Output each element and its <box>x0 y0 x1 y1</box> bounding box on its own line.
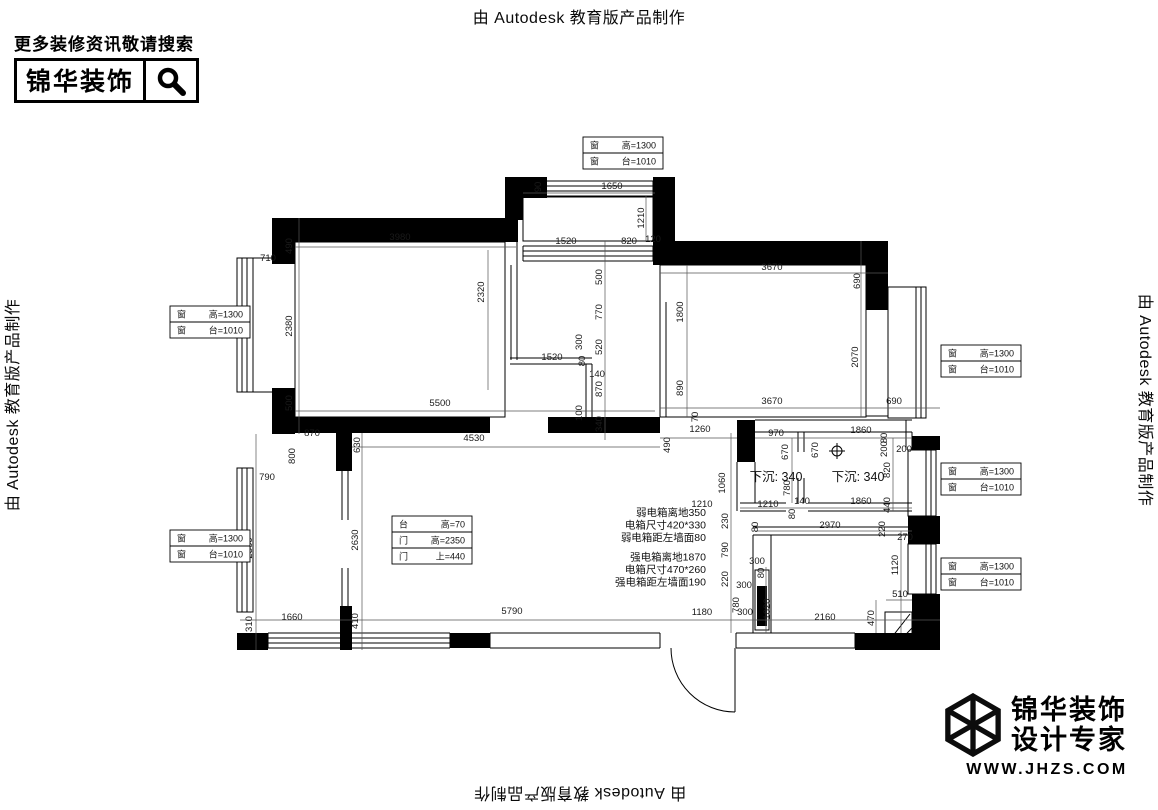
floor-plan-page: 由 Autodesk 教育版产品制作 由 Autodesk 教育版产品制作 由 … <box>0 0 1158 810</box>
window-spec-box: 窗高=1300窗台=1010 <box>941 345 1021 377</box>
dimension-label: 140 <box>589 369 605 380</box>
window-spec-box: 窗高=1300窗台=1010 <box>170 530 250 562</box>
dimension-label: 2380 <box>284 315 295 336</box>
dimension-label: 710 <box>260 253 276 264</box>
spec-boxes-layer: 窗高=1300窗台=1010窗高=1300窗台=1010窗高=1300窗台=10… <box>170 137 1021 590</box>
spec-value: 台=1010 <box>209 549 243 560</box>
electrical-note-line: 电箱尺寸420*330 <box>625 519 706 532</box>
dimension-label: 80 <box>750 522 761 533</box>
window-spec-box: 窗高=1300窗台=1010 <box>583 137 663 169</box>
spec-value: 高=1300 <box>209 309 243 320</box>
spec-key: 窗 <box>590 140 599 151</box>
spec-value: 高=1300 <box>980 466 1014 477</box>
dimension-label: 1650 <box>601 181 622 192</box>
dimension-label: 100 <box>574 405 585 421</box>
dimension-label: 500 <box>284 395 295 411</box>
dimension-label: 670 <box>810 442 821 458</box>
dimension-label: 1180 <box>692 607 712 618</box>
spec-key: 窗 <box>948 577 957 588</box>
dimension-label: 1210 <box>757 499 778 510</box>
dimension-label: 80 <box>577 356 588 367</box>
dimension-label: 890 <box>675 380 686 396</box>
dimension-label: 3670 <box>761 396 782 407</box>
dimension-label: 510 <box>892 589 908 600</box>
window-spec-box: 窗高=1300窗台=1010 <box>170 306 250 338</box>
dimension-label: 790 <box>720 542 731 558</box>
dimension-label: 670 <box>780 444 791 460</box>
window-spec-box: 窗高=1300窗台=1010 <box>941 463 1021 495</box>
dimension-label: 820 <box>621 236 637 247</box>
spec-key: 窗 <box>177 533 186 544</box>
dimension-label: 2070 <box>850 346 861 367</box>
spec-key: 门 <box>399 535 408 546</box>
dimension-label: 2970 <box>819 520 840 531</box>
dimension-label: 5790 <box>501 606 522 617</box>
footer-brand-block: 锦华装饰 设计专家 WWW.JHZS.COM <box>944 693 1150 779</box>
dimension-label: 2160 <box>814 612 835 623</box>
spec-key: 窗 <box>948 364 957 375</box>
footer-website: WWW.JHZS.COM <box>944 761 1150 779</box>
window-spec-box: 窗高=1300窗台=1010 <box>941 558 1021 590</box>
dimension-label: 270 <box>897 532 913 543</box>
dimension-label: 1120 <box>890 555 901 575</box>
spec-value: 高=2350 <box>431 535 465 546</box>
cube-3d-icon <box>944 693 1002 757</box>
dimension-label: 770 <box>594 304 605 320</box>
dimension-label: 90 <box>533 182 544 193</box>
dimension-label: 410 <box>350 613 361 629</box>
dimension-label: 1020 <box>762 598 773 619</box>
dimension-label: 70 <box>690 412 701 423</box>
dimension-label: 140 <box>794 496 810 507</box>
spec-value: 高=1300 <box>980 348 1014 359</box>
electrical-note-line: 强电箱离地1870 <box>630 551 706 564</box>
dimension-label: 1260 <box>689 424 710 435</box>
floor-drain-icon <box>829 443 845 459</box>
footer-brand-subtitle: 设计专家 <box>1011 725 1127 755</box>
dimension-label: 80 <box>787 509 798 520</box>
dimension-label: 1860 <box>850 425 871 436</box>
spec-value: 高=70 <box>441 519 465 530</box>
spec-key: 窗 <box>948 561 957 572</box>
sunken-labels-layer: 下沉: 340下沉: 340 <box>750 470 885 484</box>
dimension-label: 200 <box>879 441 890 457</box>
electrical-note-line: 强电箱距左墙面190 <box>615 576 706 589</box>
dimension-label: 870 <box>304 428 320 439</box>
floor-plan-drawing: 9016501210152082012049039807102380232050… <box>0 0 1158 810</box>
dimension-label: 3980 <box>389 232 410 243</box>
dimension-label: 470 <box>866 610 877 626</box>
sunken-floor-label: 下沉: 340 <box>750 470 803 484</box>
dimension-label: 4530 <box>463 433 484 444</box>
dimension-label: 500 <box>594 269 605 285</box>
sunken-floor-label: 下沉: 340 <box>832 470 885 484</box>
dimension-label: 970 <box>768 428 784 439</box>
spec-value: 台=1010 <box>209 325 243 336</box>
dimension-label: 80 <box>756 568 767 579</box>
dimension-label: 490 <box>284 238 295 254</box>
dimension-label: 300 <box>749 556 765 567</box>
dimension-label: 1520 <box>541 352 562 363</box>
dimension-label: 300 <box>736 580 752 591</box>
footer-brand-name: 锦华装饰 <box>1011 695 1127 725</box>
dimension-label: 230 <box>720 513 731 529</box>
electrical-notes-layer: 弱电箱离地350电箱尺寸420*330弱电箱距左墙面80强电箱离地1870电箱尺… <box>615 506 706 589</box>
dimension-label: 340 <box>594 416 605 432</box>
dimension-label: 690 <box>852 273 863 289</box>
dimension-label: 1210 <box>636 207 647 228</box>
dimension-label: 3670 <box>761 262 782 273</box>
electrical-note-line: 电箱尺寸470*260 <box>625 563 706 576</box>
spec-key: 门 <box>399 551 408 562</box>
electrical-note-line: 弱电箱离地350 <box>636 506 706 519</box>
dimension-label: 1660 <box>281 612 302 623</box>
dimension-label: 1800 <box>675 301 686 322</box>
dimension-label: 690 <box>886 396 902 407</box>
dimension-label: 120 <box>645 234 661 245</box>
spec-key: 窗 <box>590 156 599 167</box>
spec-value: 台=1010 <box>980 577 1014 588</box>
spec-value: 台=1010 <box>622 156 656 167</box>
spec-value: 高=1300 <box>209 533 243 544</box>
spec-key: 窗 <box>177 309 186 320</box>
dimension-label: 2320 <box>476 281 487 302</box>
spec-key: 窗 <box>948 348 957 359</box>
dimension-label: 1060 <box>717 472 728 493</box>
dimension-label: 220 <box>720 571 731 587</box>
spec-key: 窗 <box>177 325 186 336</box>
dimension-label: 520 <box>594 339 605 355</box>
dimension-label: 800 <box>287 448 298 464</box>
dimension-label: 1520 <box>555 236 576 247</box>
dimension-label: 870 <box>594 381 605 397</box>
spec-key: 窗 <box>948 466 957 477</box>
dimension-label: 1860 <box>850 496 871 507</box>
spec-value: 台=1010 <box>980 482 1014 493</box>
dimension-label: 2630 <box>350 529 361 550</box>
spec-key: 台 <box>399 519 408 530</box>
door-spec-box: 台高=70门高=2350门上=440 <box>392 516 472 564</box>
dimension-label: 220 <box>877 521 888 537</box>
dimension-label: 310 <box>244 616 255 632</box>
spec-value: 高=1300 <box>622 140 656 151</box>
spec-value: 上=440 <box>436 552 465 562</box>
spec-value: 高=1300 <box>980 561 1014 572</box>
dimension-label: 490 <box>662 437 673 453</box>
spec-key: 窗 <box>948 482 957 493</box>
dimension-label: 440 <box>882 497 893 513</box>
dimension-label: 200 <box>896 444 912 455</box>
dimension-label: 5500 <box>429 398 450 409</box>
dimension-label: 630 <box>352 437 363 453</box>
dimension-label: 790 <box>259 472 275 483</box>
dimension-label: 300 <box>737 607 753 618</box>
spec-key: 窗 <box>177 549 186 560</box>
spec-value: 台=1010 <box>980 364 1014 375</box>
entry-door <box>671 648 735 712</box>
dimension-label: 300 <box>574 334 585 350</box>
electrical-note-line: 弱电箱距左墙面80 <box>621 531 706 544</box>
